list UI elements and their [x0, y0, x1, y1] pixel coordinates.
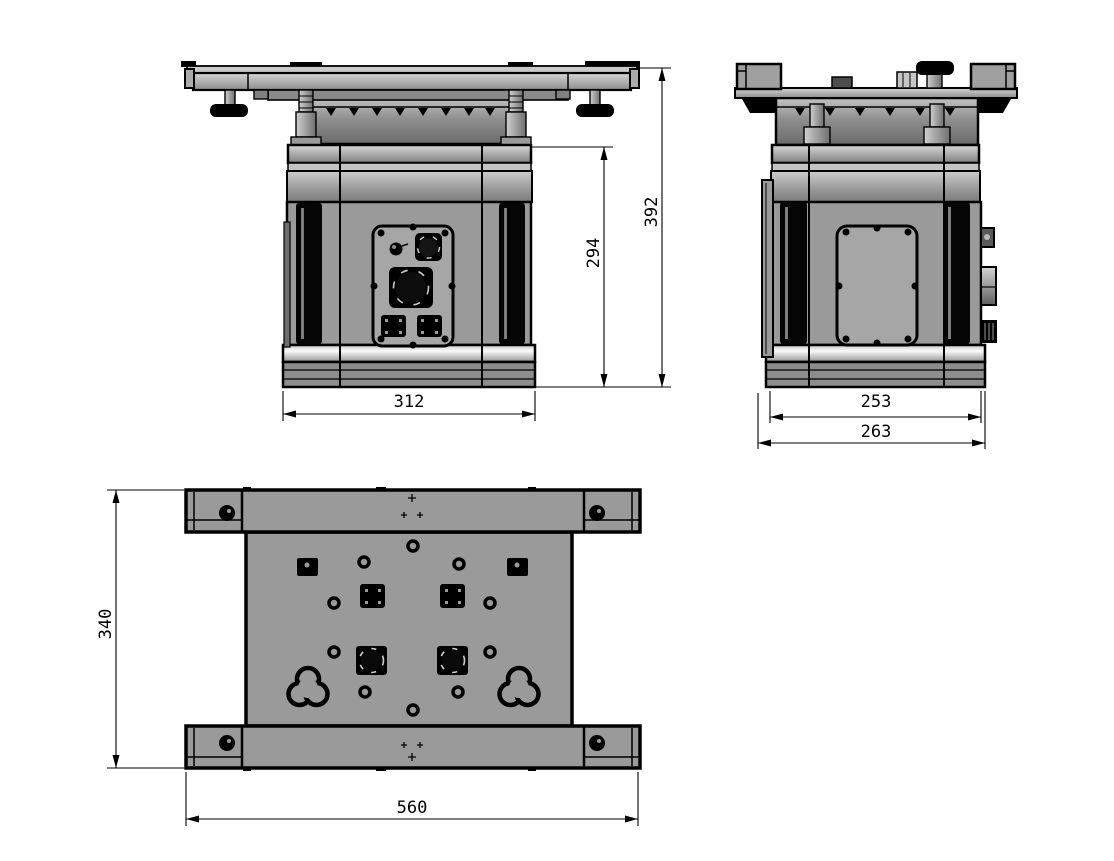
- dim-label-body-height: 294: [584, 238, 604, 269]
- mounting-hole: [360, 687, 370, 697]
- vent-louver-line: [948, 207, 951, 339]
- upper-connector-right: [440, 584, 465, 608]
- corner-pad-right: [507, 558, 528, 576]
- rail-end-block-right: [971, 64, 1015, 89]
- dim-label-plate-width: 560: [397, 798, 428, 818]
- rail-end-block-left: [737, 64, 781, 89]
- knob-hole-right: [589, 505, 605, 521]
- dimension-body-height: 294: [531, 147, 671, 387]
- mounting-hole: [408, 705, 418, 715]
- body-shoulder: [771, 171, 980, 202]
- dimension-plate-depth: 340: [96, 490, 184, 768]
- plate-tab-left: [254, 90, 268, 99]
- power-connector-main: [389, 267, 433, 308]
- vent-slot: [780, 202, 807, 344]
- arrowhead-left: [770, 414, 783, 421]
- arrowhead-bottom: [113, 755, 120, 768]
- arrowhead-top: [659, 68, 666, 81]
- dim-label-overall-height: 392: [642, 197, 662, 228]
- lower-connector-right: [437, 646, 468, 675]
- panel-plate: [837, 226, 917, 345]
- drawing-canvas: 312 294 392: [0, 0, 1114, 861]
- upper-connector-left: [360, 584, 385, 608]
- mounting-hole: [359, 557, 369, 567]
- side-view: 253 263: [735, 61, 1017, 449]
- knob-stem: [927, 74, 942, 88]
- vent-grille-left: [296, 203, 322, 344]
- knob-glint: [227, 509, 231, 513]
- arrowhead-bottom: [601, 374, 608, 387]
- plate-tab-right: [556, 90, 570, 99]
- post-foot: [804, 127, 830, 144]
- extension-lines: [107, 490, 184, 768]
- knob-glint: [597, 509, 601, 513]
- post-stem: [810, 104, 824, 127]
- vent-grille-side-right: [943, 202, 970, 344]
- io-connector-left: [381, 315, 406, 337]
- post-thread: [509, 90, 523, 112]
- dimension-overall-height: 392: [640, 68, 671, 387]
- arrowhead-right: [625, 816, 638, 823]
- side-connector-top: [981, 228, 994, 247]
- plate-end-cap-right: [630, 69, 639, 88]
- dimension-body-depth: 253: [770, 391, 981, 423]
- base-lower: [766, 362, 985, 387]
- plate-main: [193, 73, 631, 90]
- vent-slot: [296, 203, 322, 344]
- knob-hole-right: [589, 735, 605, 751]
- body-top-band: [772, 145, 979, 163]
- signal-connector-round: [415, 233, 442, 261]
- corner-pad-left: [297, 558, 318, 576]
- side-connector-bottom: [981, 321, 996, 342]
- side-connector-middle: [981, 267, 996, 305]
- vent-slot: [499, 203, 525, 344]
- plate-end-cap-left: [185, 69, 194, 88]
- base-highlight: [766, 345, 985, 362]
- mounting-hole: [454, 559, 464, 569]
- knob-head: [916, 61, 954, 75]
- connector-panel: [371, 224, 456, 349]
- arrowhead-right: [522, 411, 535, 418]
- access-panel: [836, 225, 919, 347]
- post-stem: [930, 104, 944, 127]
- vent-louver-line: [785, 207, 788, 339]
- arrowhead-right: [972, 440, 985, 447]
- clamp-knob-left: [210, 90, 248, 117]
- dim-label-base-width: 312: [394, 392, 425, 412]
- vent-louver-line: [301, 208, 304, 339]
- knob-hole-left: [219, 505, 235, 521]
- orthographic-drawing: 312 294 392: [0, 0, 1114, 861]
- body-side-ledge: [284, 222, 290, 347]
- arrowhead-bottom: [659, 374, 666, 387]
- stop-block: [832, 77, 852, 88]
- knob-head: [210, 104, 248, 117]
- vent-grille-right: [499, 203, 525, 344]
- drum-body: [310, 98, 510, 144]
- knob-glint: [597, 739, 601, 743]
- vent-grille-side-left: [780, 202, 807, 344]
- dimension-plate-width: 560: [186, 772, 638, 826]
- top-plate-edge: [735, 64, 1017, 98]
- lower-connector-left: [356, 646, 387, 675]
- post-collar: [296, 112, 316, 137]
- clamp-knob-right: [576, 90, 614, 117]
- level-vial: [897, 72, 917, 88]
- knob-hole-left: [219, 735, 235, 751]
- arrowhead-left: [283, 411, 296, 418]
- side-mount-plate: [762, 180, 773, 357]
- dim-label-overall-depth: 263: [861, 422, 892, 442]
- top-plate: [181, 61, 640, 100]
- rail-bar: [186, 490, 640, 532]
- arrowhead-right: [968, 414, 981, 421]
- body-shoulder: [287, 171, 532, 202]
- body-trim-band: [772, 163, 979, 171]
- arrowhead-top: [601, 147, 608, 160]
- mounting-hole: [453, 687, 463, 697]
- dimension-base-width: 312: [283, 391, 535, 421]
- knob-head: [576, 104, 614, 117]
- body-top-band: [288, 145, 531, 163]
- post-foot: [924, 127, 950, 144]
- io-connector-right: [417, 315, 442, 337]
- dim-label-body-depth: 253: [861, 392, 892, 412]
- post-thread: [299, 90, 313, 112]
- knob-glint: [227, 739, 231, 743]
- arrowhead-top: [113, 490, 120, 503]
- vent-louver-line: [504, 208, 507, 339]
- top-view: 340 560: [96, 487, 640, 826]
- cross-rail-top: [186, 487, 640, 532]
- mounting-hole: [408, 541, 418, 551]
- adjustment-knob: [916, 61, 954, 88]
- vent-slot: [943, 202, 970, 344]
- base-lower: [283, 362, 535, 387]
- rail-bar: [186, 726, 640, 768]
- knob-stem: [590, 90, 600, 106]
- base-highlight: [283, 345, 535, 362]
- body-trim-band: [288, 163, 531, 171]
- knob-stem: [225, 90, 235, 106]
- post-collar: [506, 112, 526, 137]
- front-view: 312 294 392: [181, 61, 671, 421]
- cross-rail-bottom: [186, 726, 640, 771]
- mounting-hole: [485, 647, 495, 657]
- mounting-hole: [485, 598, 495, 608]
- mounting-hole: [329, 598, 339, 608]
- mounting-hole: [329, 647, 339, 657]
- arrowhead-left: [758, 440, 771, 447]
- arrowhead-left: [186, 816, 199, 823]
- support-drum: [310, 98, 510, 144]
- dim-label-plate-depth: 340: [96, 609, 116, 640]
